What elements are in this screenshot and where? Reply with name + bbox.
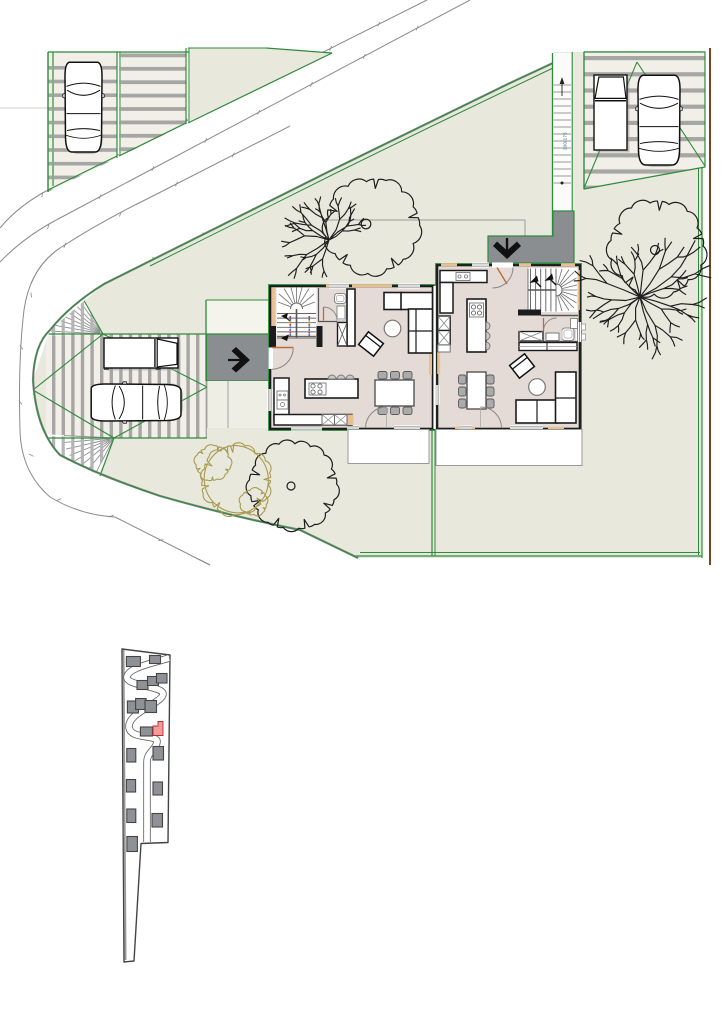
svg-text:200/175: 200/175 <box>563 132 568 150</box>
